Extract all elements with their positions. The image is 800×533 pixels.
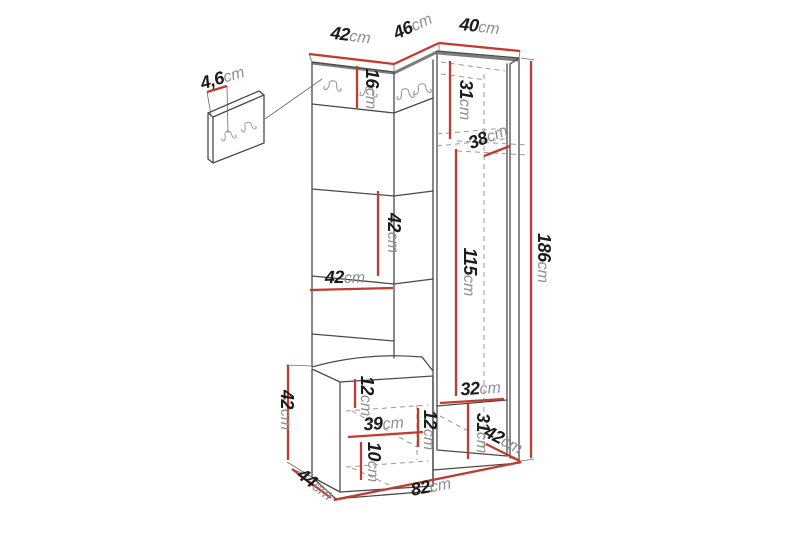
dim-label-interior-height: 115cm [460, 248, 480, 297]
left-panel-outline [312, 62, 394, 367]
dim-label-total-height: 186cm [534, 233, 554, 283]
furniture-dimension-diagram: 4,6cm 42cm 46cm 40cm 16cm 31cm 38cm 42cm… [0, 0, 800, 533]
dim-label-shelf-gap: 12cm [420, 410, 440, 450]
coat-hook-icon [324, 80, 342, 91]
left-panel-divider-1 [312, 189, 433, 196]
dim-label-bench-height: 42cm [277, 389, 297, 430]
dim-label-bottom-height: 10cm [364, 442, 384, 482]
dim-label-right-width: 40cm [458, 14, 501, 38]
dim-line-right-width [439, 43, 520, 51]
dim-label-shelf-width: 39cm [363, 412, 405, 435]
dim-label-left-width: 42cm [328, 23, 371, 48]
left-panel-bottom-edge [312, 334, 394, 341]
dim-label-mid-width: 42cm [324, 267, 366, 288]
dim-label-bench-top-shelf: 12cm [357, 376, 377, 416]
coat-hook-icon [240, 120, 256, 132]
dim-label-panel-thickness: 4,6cm [197, 61, 247, 94]
dim-label-corner-width: 46cm [389, 8, 435, 44]
dim-label-top-section: 31cm [456, 80, 476, 120]
diagram-canvas: 4,6cm 42cm 46cm 40cm 16cm 31cm 38cm 42cm… [0, 0, 800, 533]
callout-line [265, 79, 322, 119]
dimension-labels: 4,6cm 42cm 46cm 40cm 16cm 31cm 38cm 42cm… [197, 8, 554, 504]
dim-line-left-width [309, 54, 394, 64]
dim-label-lower-depth: 32cm [460, 377, 502, 400]
coat-hook-icon [413, 83, 431, 95]
wall-hook-panel [208, 79, 322, 163]
dim-line-top-depth [484, 146, 510, 156]
dim-line-mid-width [310, 288, 393, 290]
dim-label-mid-height: 42cm [384, 212, 404, 253]
coat-hook-icon [396, 88, 414, 100]
dim-label-total-width: 82cm [409, 472, 452, 499]
dim-label-hook-rail-height: 16cm [362, 69, 382, 109]
